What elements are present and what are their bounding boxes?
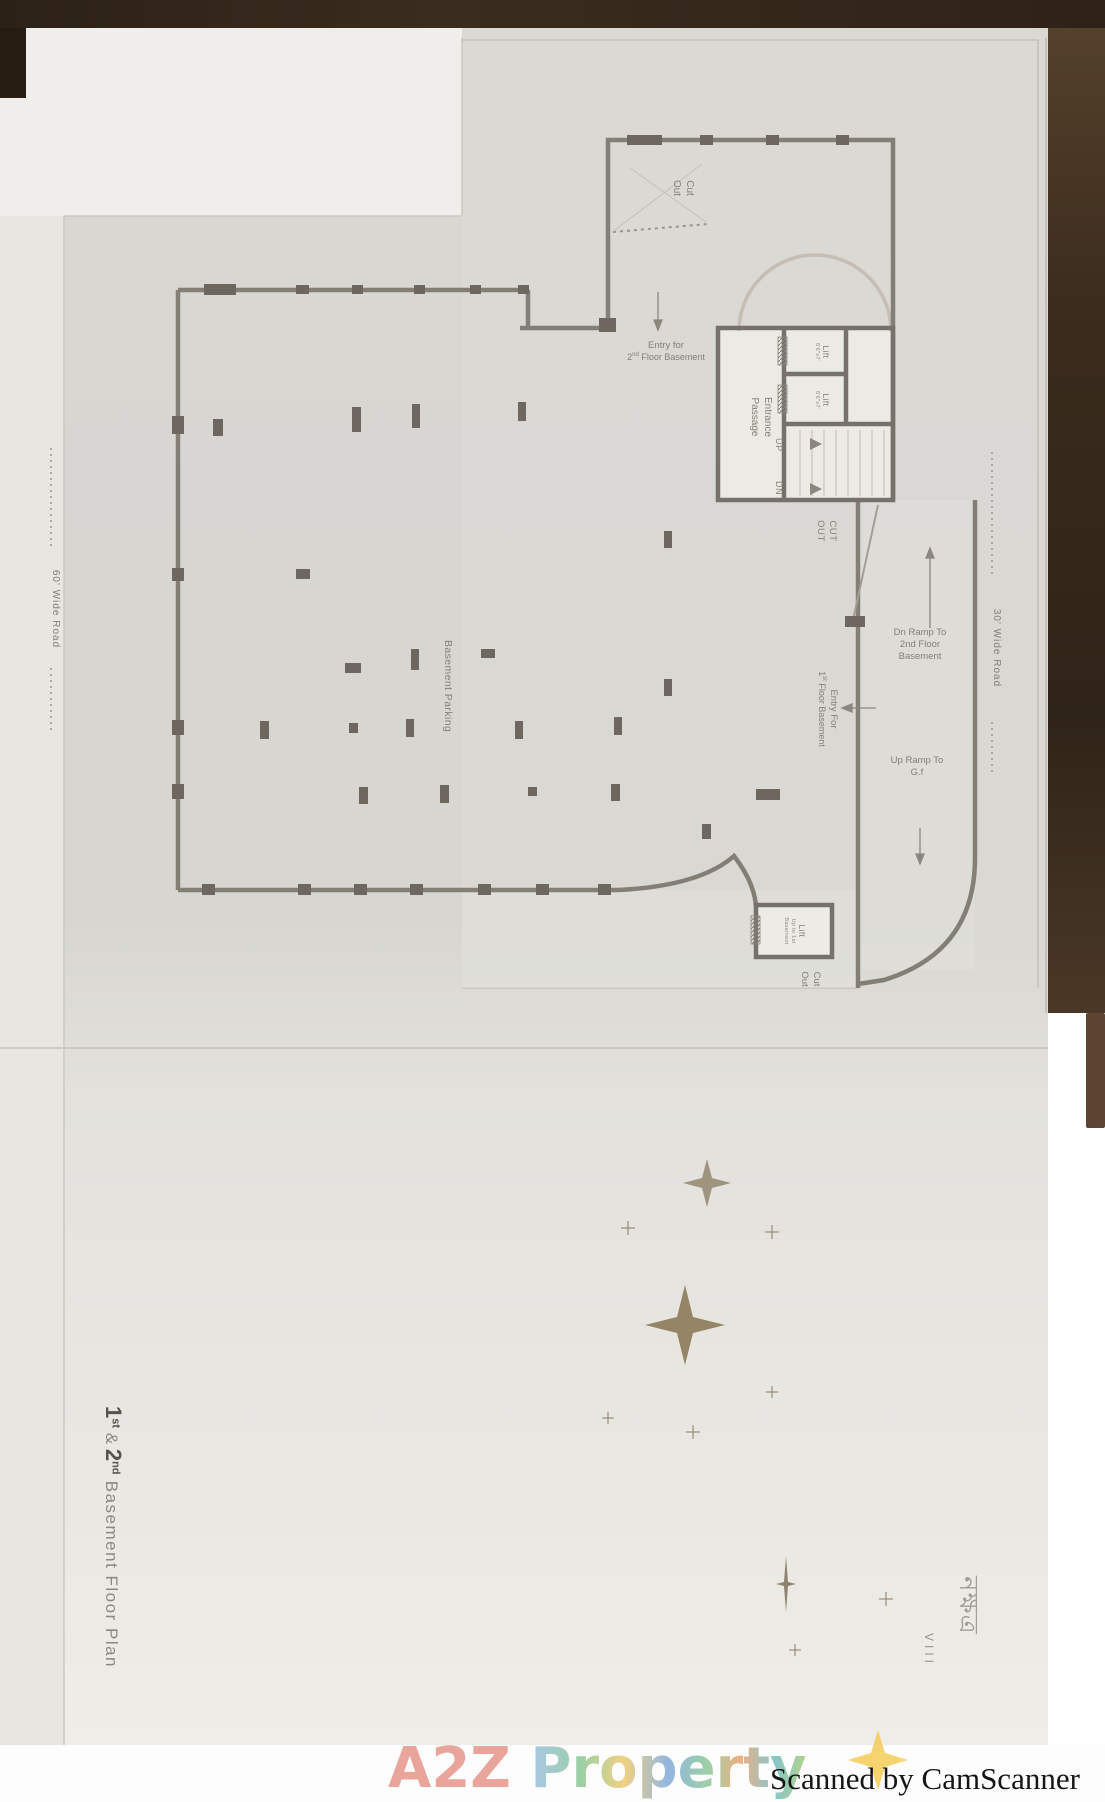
label-entrance-passage: Entrance Passage — [748, 386, 773, 448]
label-stair-up: UP — [773, 438, 784, 456]
label-road-30ft: 30' Wide Road — [990, 578, 1003, 718]
label-lift-bottom: Lift Up to 1st Basement — [782, 909, 806, 953]
sparkle-icon — [645, 1159, 796, 1612]
label-entry-1st-basement: Entry For 1st Floor Basement — [816, 655, 839, 763]
label-cut-out-core: CUT OUT — [814, 515, 838, 547]
a2z-property-watermark: A2Z Property — [388, 1734, 807, 1802]
driveway-arc — [739, 255, 891, 331]
label-lift-2: Lift 6'6"x7' — [813, 382, 830, 418]
floorplan-drawing — [0, 0, 1105, 1802]
label-entry-2nd-basement: Entry for 2nd Floor Basement — [610, 340, 722, 363]
developer-logo-series: VIII — [921, 1633, 936, 1685]
label-stair-dn: DN — [773, 481, 784, 499]
label-basement-parking: Basement Parking — [441, 640, 454, 732]
label-lift-1: Lift 6'6"x7' — [813, 334, 830, 370]
label-cut-out-bottom: Cut Out — [798, 962, 822, 996]
label-cut-out-top: Cut Out — [670, 168, 695, 208]
camscanner-caption: Scanned by CamScanner — [770, 1760, 1080, 1799]
sparkle-plus-marks — [602, 1221, 893, 1656]
developer-logo-bengali: নক্ষত্র — [953, 1576, 986, 1686]
structural-columns — [172, 135, 865, 895]
page-title: 1st & 2nd Basement Floor Plan — [100, 1406, 128, 1751]
label-road-60ft: 60' Wide Road — [49, 553, 62, 665]
label-up-ramp: Up Ramp To G.f — [874, 755, 960, 779]
label-dn-ramp: Dn Ramp To 2nd Floor Basement — [872, 627, 968, 663]
scanned-floorplan-page: Cut Out Entry for 2nd Floor Basement Ent… — [0, 0, 1105, 1802]
